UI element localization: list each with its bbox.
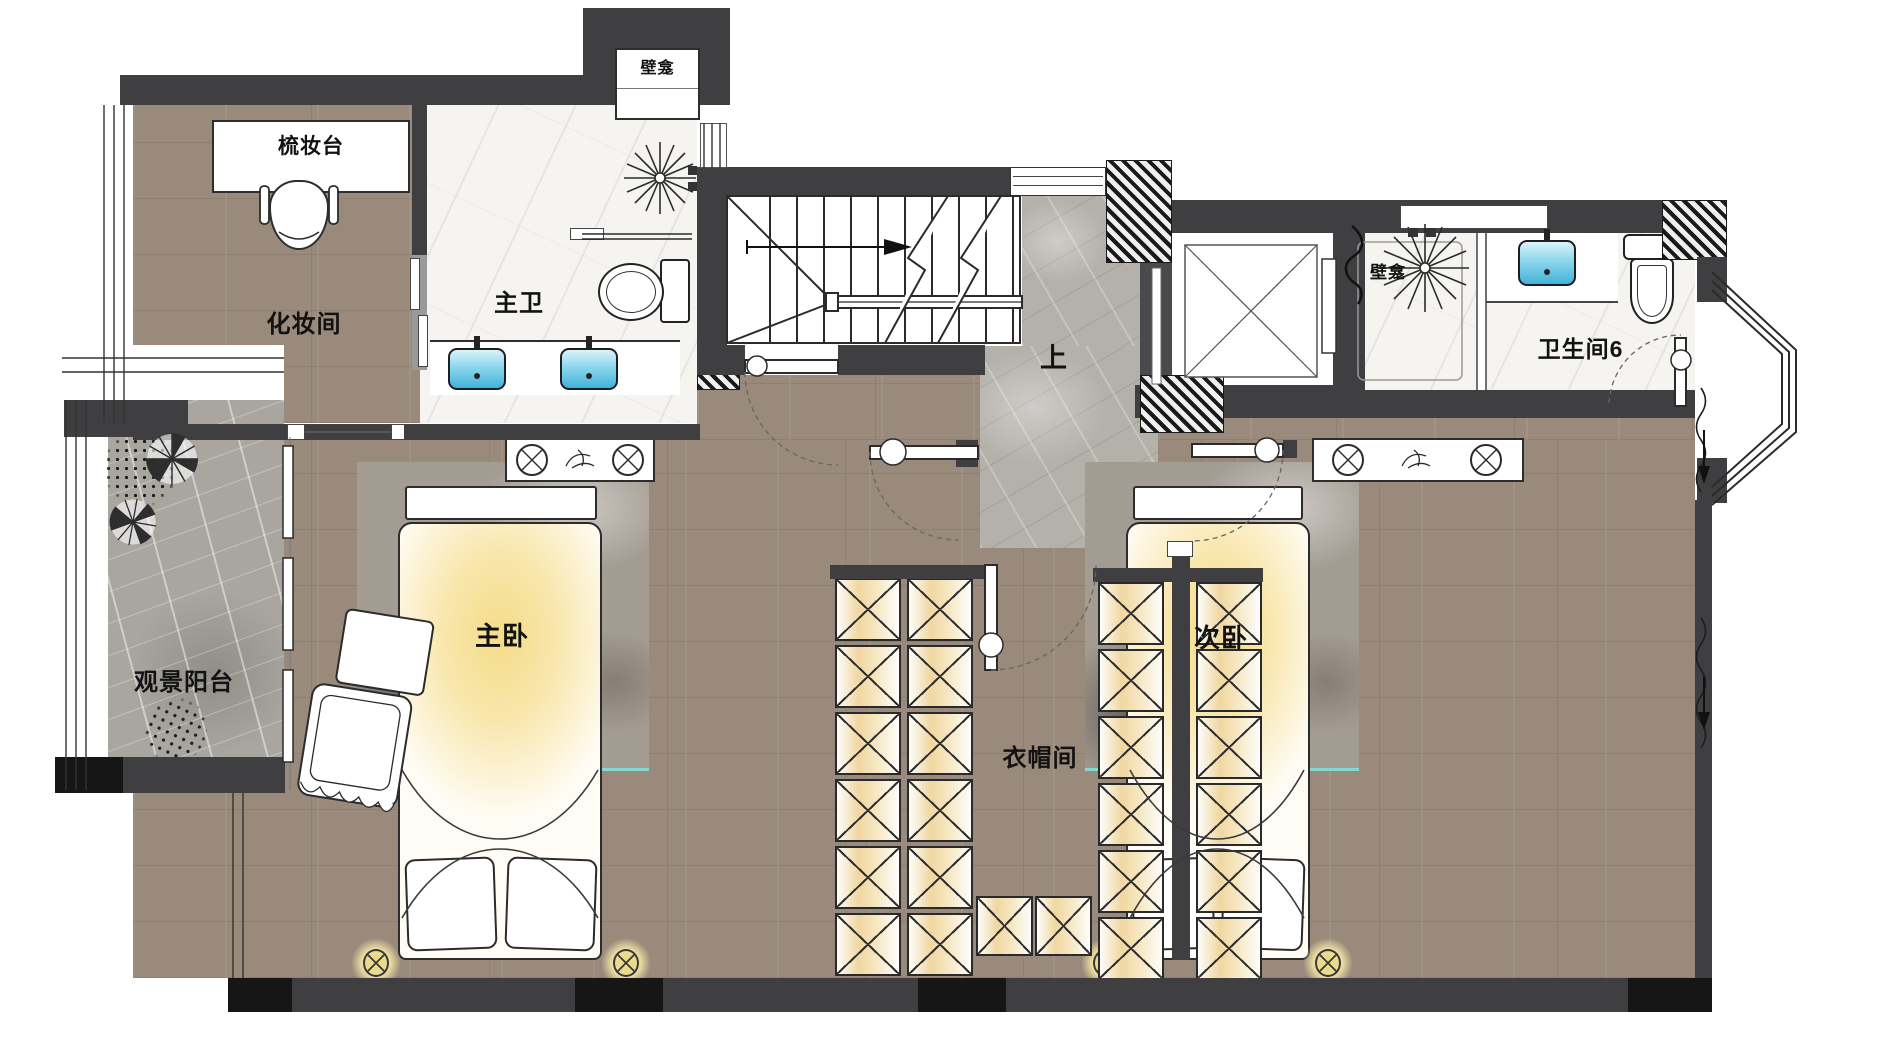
wardrobe-cell [1098, 649, 1164, 712]
balcony-west-window [62, 400, 108, 790]
shelf-niche [1010, 167, 1106, 196]
wardrobe-cell [1098, 716, 1164, 779]
wardrobe-cell [1098, 850, 1164, 913]
hall-floor [697, 375, 985, 440]
wardrobe-cell [1035, 896, 1092, 956]
wall-hatched [1662, 200, 1727, 260]
niche-shower-label: 壁龛 [1358, 258, 1418, 283]
wardrobe-cell [835, 645, 901, 708]
wall [697, 167, 1012, 196]
wardrobe-top-bar [830, 565, 988, 579]
wardrobe-cell [907, 712, 973, 775]
pillow-icon [404, 856, 497, 951]
decor-niche [1312, 438, 1524, 482]
wall-black [1628, 978, 1712, 1012]
room-label-master-bedroom: 主卧 [452, 616, 552, 653]
wall [133, 424, 700, 440]
wardrobe-cell [1098, 783, 1164, 846]
wall [1697, 458, 1727, 503]
room-label-second-bedroom: 次卧 [1171, 618, 1271, 655]
niche-top-box: 壁龛 [615, 48, 700, 120]
room-label-bathroom6: 卫生间6 [1518, 330, 1643, 364]
sliding-door-panel [418, 315, 428, 367]
toilet-tank-icon [660, 259, 690, 323]
wardrobe-cell [1196, 649, 1262, 712]
wall [412, 105, 427, 255]
wall-black [55, 757, 123, 793]
stairs-up-label: 上 [1030, 336, 1078, 375]
elevator-floor [1172, 233, 1347, 390]
room-label-master-bath: 主卫 [478, 283, 560, 318]
balcony-north-window [62, 345, 284, 400]
shower-floor [1348, 233, 1477, 390]
wardrobe-cell [1098, 582, 1164, 645]
wardrobe-cell [1196, 850, 1262, 913]
wall-black [918, 978, 1006, 1012]
wall [1172, 545, 1190, 960]
wall [838, 345, 985, 375]
room-label-closet: 衣帽间 [980, 738, 1100, 773]
room-label-balcony: 观景阳台 [118, 662, 250, 697]
wall-hatched [1106, 160, 1172, 263]
hall-floor-2 [1158, 418, 1695, 440]
wardrobe-cell [835, 578, 901, 641]
wardrobe-cell [1098, 917, 1164, 980]
wardrobe-cell [976, 896, 1033, 956]
floor-plan: 梳妆台 [0, 0, 1889, 1064]
shelf-icon [570, 228, 604, 240]
wardrobe-cell [907, 645, 973, 708]
wardrobe-cell [907, 578, 973, 641]
niche-top-label: 壁龛 [617, 54, 698, 78]
decor-niche [505, 438, 655, 482]
toilet-icon [1630, 258, 1674, 324]
wardrobe-cell [835, 779, 901, 842]
window [700, 123, 727, 168]
toilet-icon [598, 263, 664, 321]
wall [1350, 390, 1695, 418]
master-bed-bench-icon [405, 486, 597, 520]
wall-black [228, 978, 292, 1012]
wall [1695, 500, 1712, 1012]
wardrobe-cell [907, 779, 973, 842]
door-jamb [956, 440, 978, 467]
wardrobe-cell [835, 846, 901, 909]
wall-black [575, 978, 663, 1012]
sink-icon [448, 348, 506, 390]
sink-icon [560, 348, 618, 390]
wardrobe-cell [1196, 917, 1262, 980]
elevator-door-wall [1140, 263, 1172, 390]
wardrobe-cell [1196, 783, 1262, 846]
wardrobe-cell [835, 913, 901, 976]
wall [1697, 257, 1727, 302]
niche-outline [1400, 205, 1548, 229]
pocket-door-panel [287, 424, 305, 440]
pocket-door-panel [391, 424, 405, 440]
room-label-makeup: 化妆间 [243, 304, 365, 339]
sink-icon [1518, 240, 1576, 286]
sliding-door-panel [410, 258, 420, 310]
plant-icon [104, 428, 178, 508]
wardrobe-cell [835, 712, 901, 775]
wall [697, 345, 745, 375]
wall [1333, 233, 1365, 390]
wardrobe-cell [1196, 716, 1262, 779]
second-bed-bench-icon [1133, 486, 1303, 520]
door-jamb [1167, 541, 1193, 557]
stairwell-floor [727, 196, 1022, 346]
wardrobe-cell [907, 913, 973, 976]
wall-hatched [1140, 375, 1224, 433]
door-jamb [1283, 440, 1297, 458]
wardrobe-cell [907, 846, 973, 909]
pillow-icon [504, 856, 597, 951]
